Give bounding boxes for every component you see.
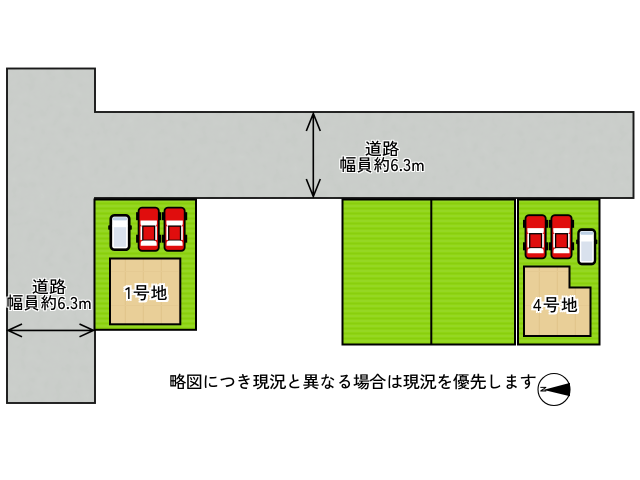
svg-text:N: N <box>538 386 549 392</box>
